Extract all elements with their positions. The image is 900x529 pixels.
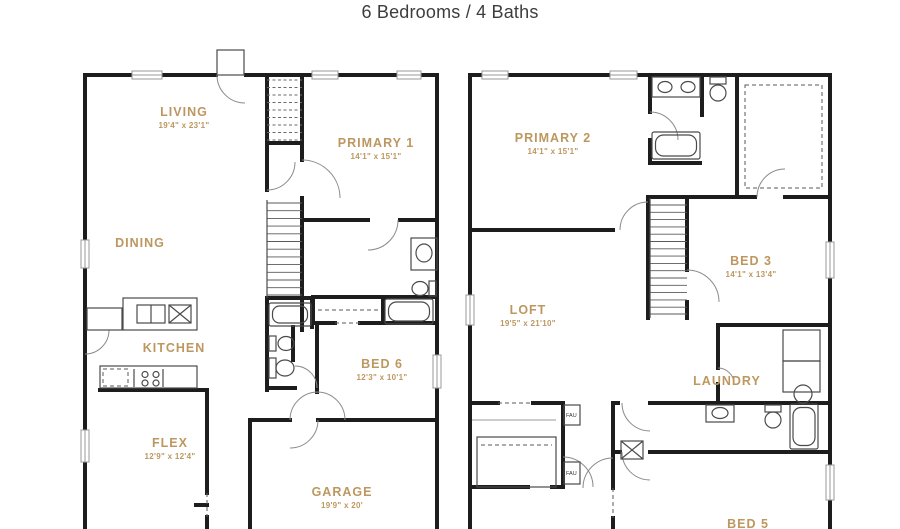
primary2-bathroom (652, 77, 726, 159)
room-label-primary1: PRIMARY 1 14'1" x 15'1" (338, 136, 414, 162)
dryer-icon (783, 361, 820, 392)
room-label-garage: GARAGE 19'9" x 20' (312, 485, 373, 511)
primary1-bathroom (385, 238, 437, 324)
stairs (650, 198, 687, 318)
room-label-bed3: BED 3 14'1" x 13'4" (726, 254, 777, 280)
vanity-sink-icon (411, 238, 437, 270)
room-label-bed6: BED 6 12'3" x 10'1" (357, 357, 408, 383)
bathtub-icon (269, 303, 311, 326)
hall-bathroom (269, 303, 311, 378)
utility-sink-icon (794, 385, 812, 403)
room-label-loft: LOFT 19'5" x 21'10" (500, 303, 556, 329)
front-door (217, 50, 244, 75)
hall-bathroom-2 (706, 404, 818, 449)
washer-icon (783, 330, 820, 361)
refrigerator-icon (103, 369, 128, 386)
toilet-icon (710, 77, 726, 101)
room-label-bed5: BED 5 (727, 517, 769, 529)
room-label-primary2: PRIMARY 2 14'1" x 15'1" (515, 131, 591, 157)
room-label-kitchen: KITCHEN (143, 341, 206, 357)
room-label-laundry: LAUNDRY (693, 374, 761, 390)
first-floor-plan (81, 50, 441, 529)
kitchen-island (123, 298, 197, 330)
bathtub-icon (652, 132, 700, 159)
room-label-dining: DINING (115, 236, 165, 252)
bathtub-icon (385, 299, 433, 324)
bathtub-icon (790, 404, 818, 449)
toilet-icon (412, 281, 436, 296)
toilet-icon (269, 336, 294, 351)
fau-closets: FAU FAU (564, 405, 580, 484)
sink-icon (269, 358, 294, 378)
stairs (267, 80, 302, 298)
toilet-icon (765, 405, 781, 428)
stove-icon (142, 372, 159, 387)
closet (472, 420, 556, 487)
walk-in-closet-shelves (745, 85, 822, 188)
double-vanity-icon (652, 77, 700, 97)
laundry-appliances (783, 330, 820, 403)
room-label-flex: FLEX 12'9" x 12'4" (145, 436, 196, 462)
floor-plan-page: 6 Bedrooms / 4 Baths (0, 0, 900, 529)
door-arcs (85, 75, 398, 448)
fau-label: FAU (566, 413, 577, 419)
room-label-living: LIVING 19'4" x 23'1" (159, 105, 210, 131)
windows (81, 71, 441, 462)
sink-icon (706, 405, 734, 422)
attic-access-icon (621, 441, 643, 459)
fau-label: FAU (566, 471, 577, 477)
